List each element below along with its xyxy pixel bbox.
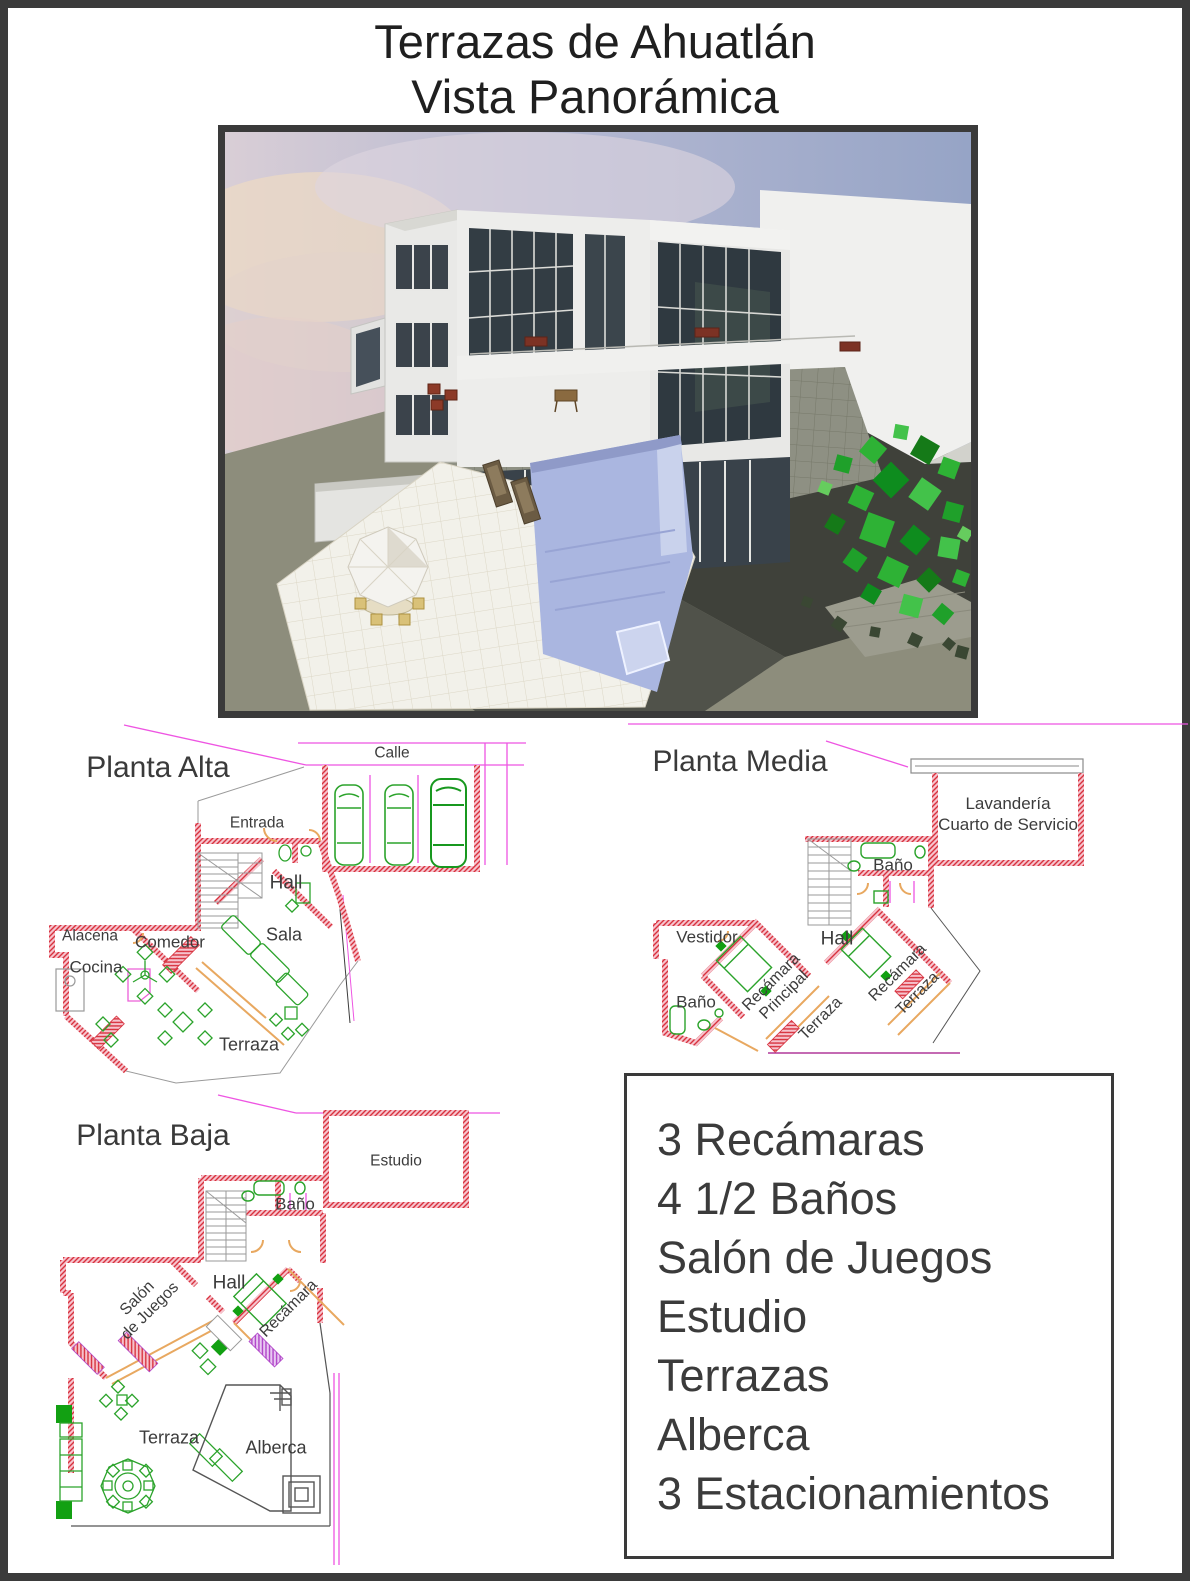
- media-label-bano-left: Baño: [676, 994, 716, 1011]
- alta-title: Planta Alta: [86, 751, 229, 785]
- planta-baja-drawing: [38, 1093, 538, 1575]
- baja-label-hall: Hall: [213, 1275, 246, 1292]
- house-3d-render-drawing: [225, 132, 971, 711]
- alta-label-terraza: Terraza: [219, 1037, 279, 1054]
- baja-label-bano: Baño: [275, 1196, 315, 1213]
- house-3d-render: [218, 125, 978, 718]
- features-box: 3 Recámaras 4 1/2 Baños Salón de Juegos …: [624, 1073, 1114, 1559]
- media-label-hall: Hall: [821, 931, 854, 948]
- feature-estudio: Estudio: [657, 1287, 1111, 1346]
- page-title-line1: Terrazas de Ahuatlán: [8, 14, 1182, 69]
- alta-label-entrada: Entrada: [230, 815, 284, 832]
- floorplan-planta-alta: Planta Alta Calle Entrada Hall Alacena C…: [48, 723, 528, 1088]
- alta-label-sala: Sala: [266, 927, 302, 944]
- media-label-vestidor: Vestidor: [676, 929, 737, 946]
- media-title: Planta Media: [652, 745, 827, 779]
- feature-estacionamientos: 3 Estacionamientos: [657, 1464, 1111, 1523]
- baja-label-estudio: Estudio: [370, 1153, 422, 1170]
- media-label-bano-top: Baño: [873, 857, 913, 874]
- alta-label-hall: Hall: [270, 875, 303, 892]
- alta-label-cocina: Cocina: [70, 959, 123, 976]
- feature-salon-de-juegos: Salón de Juegos: [657, 1228, 1111, 1287]
- alta-label-comedor: Comedor: [135, 934, 205, 951]
- floorplan-planta-media: Planta Media Lavandería Cuarto de Servic…: [628, 721, 1188, 1066]
- flyer-page: Terrazas de Ahuatlán Vista Panorámica: [0, 0, 1190, 1581]
- feature-alberca: Alberca: [657, 1405, 1111, 1464]
- baja-label-alberca: Alberca: [245, 1440, 306, 1457]
- feature-recamaras: 3 Recámaras: [657, 1110, 1111, 1169]
- alta-label-alacena: Alacena: [62, 928, 118, 945]
- floorplan-planta-baja: Planta Baja Estudio Baño Hall Salón de J…: [38, 1093, 538, 1575]
- feature-terrazas: Terrazas: [657, 1346, 1111, 1405]
- feature-banos: 4 1/2 Baños: [657, 1169, 1111, 1228]
- baja-label-terraza: Terraza: [139, 1430, 199, 1447]
- page-title: Terrazas de Ahuatlán Vista Panorámica: [8, 14, 1182, 124]
- alta-label-calle: Calle: [374, 745, 409, 762]
- page-title-line2: Vista Panorámica: [8, 69, 1182, 124]
- baja-title: Planta Baja: [76, 1119, 229, 1153]
- media-label-lavanderia: Lavandería Cuarto de Servicio: [938, 793, 1078, 835]
